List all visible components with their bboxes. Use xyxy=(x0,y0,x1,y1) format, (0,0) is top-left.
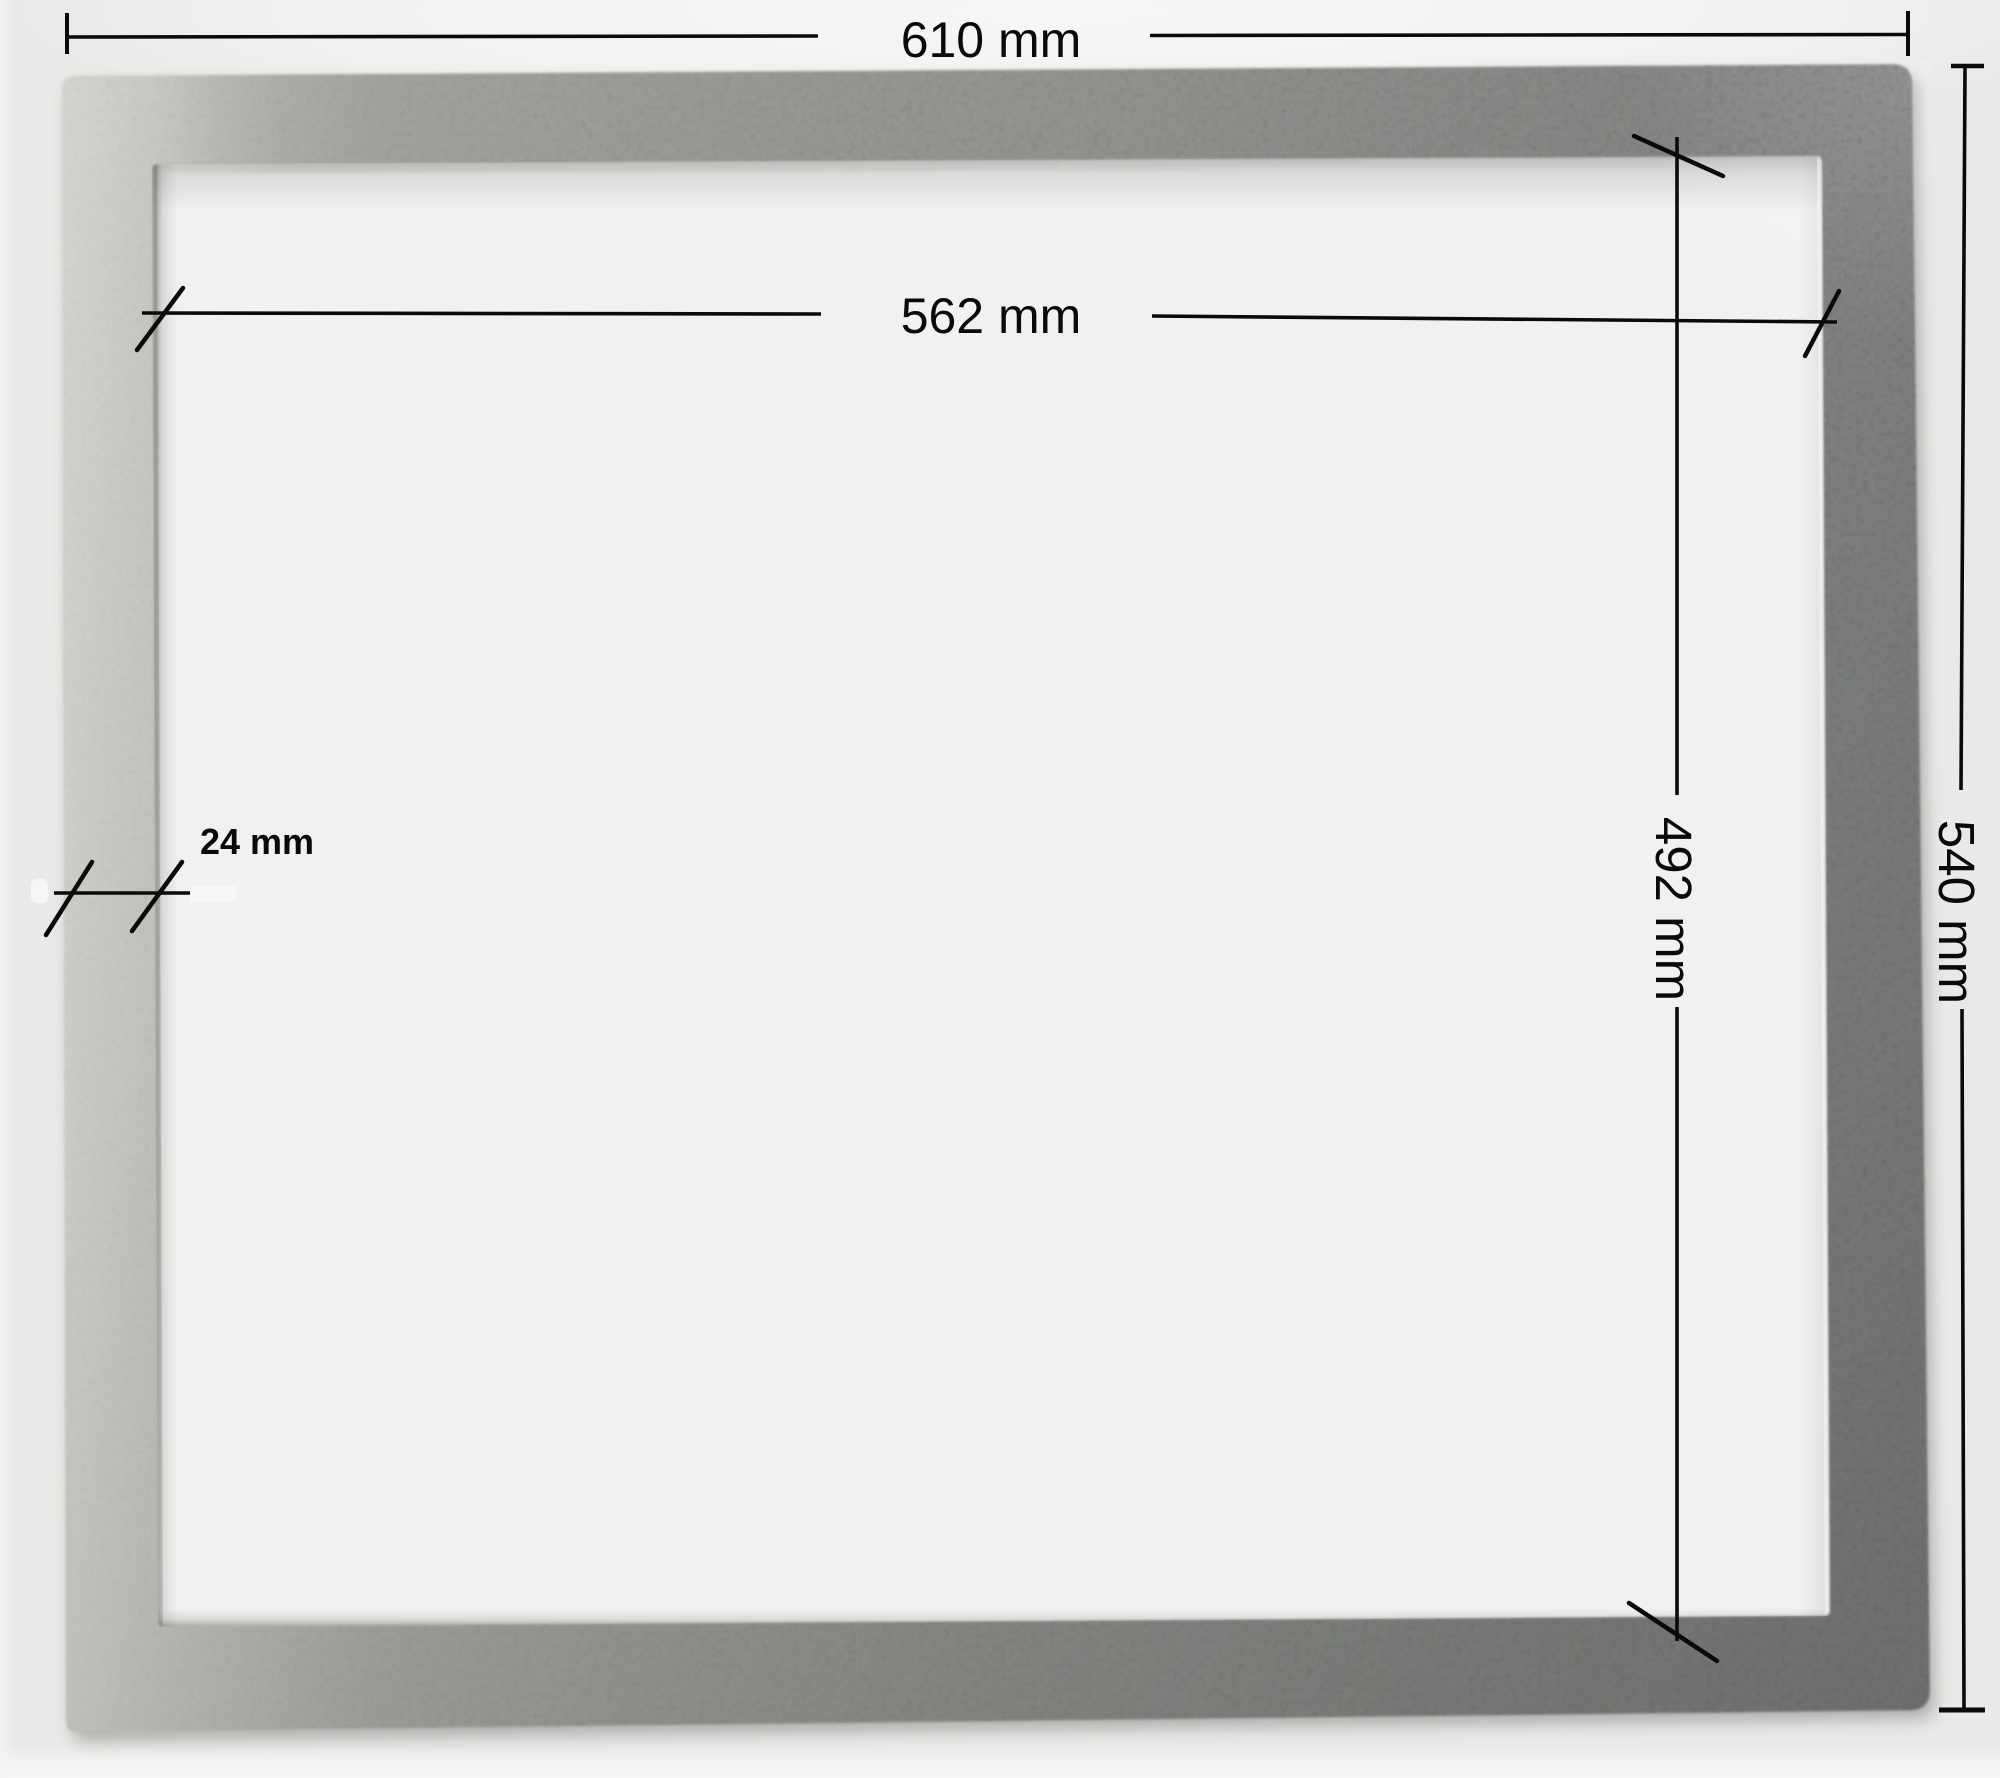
svg-text:492 mm: 492 mm xyxy=(1645,817,1702,1001)
svg-text:610 mm: 610 mm xyxy=(901,12,1082,68)
svg-text:24 mm: 24 mm xyxy=(200,821,314,862)
svg-text:562 mm: 562 mm xyxy=(901,288,1082,344)
svg-text:540 mm: 540 mm xyxy=(1928,820,1985,1004)
